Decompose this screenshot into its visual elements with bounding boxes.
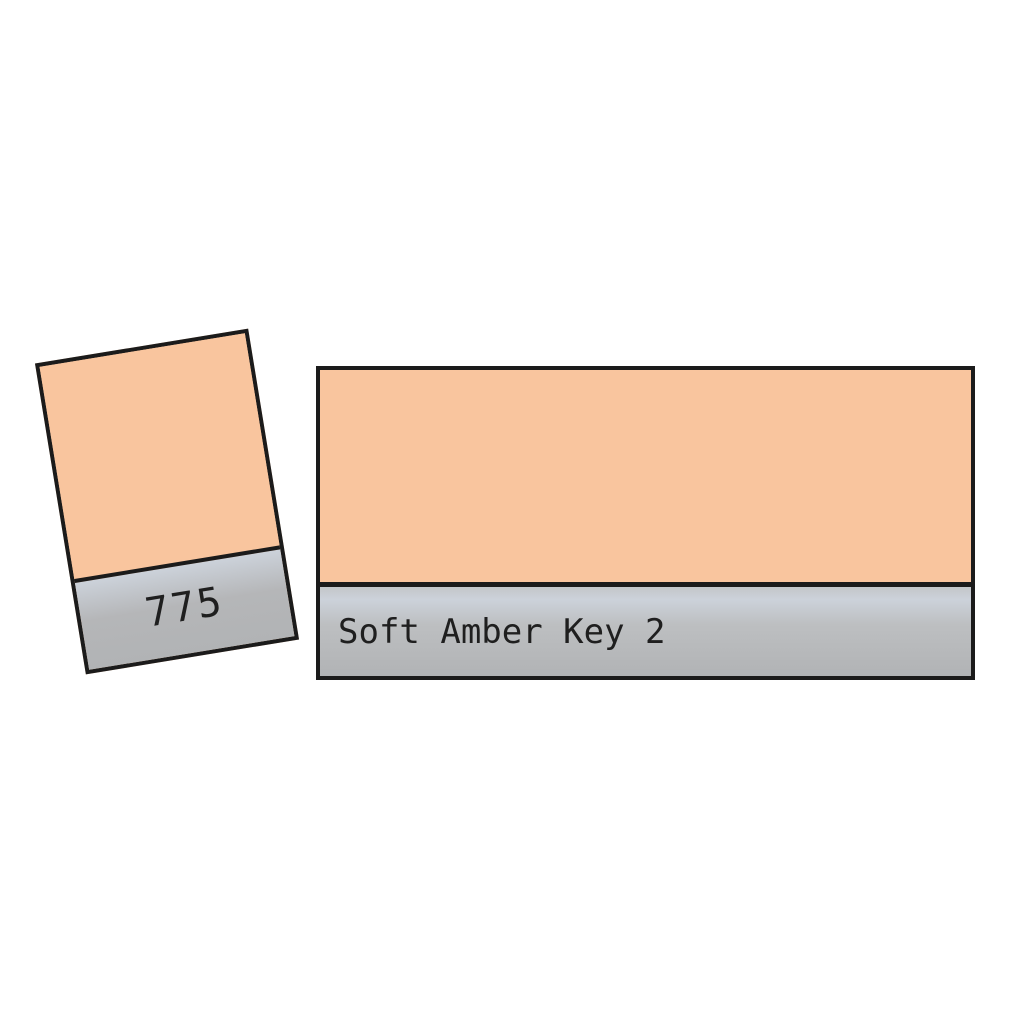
strip-color-area <box>320 370 971 582</box>
filter-name: Soft Amber Key 2 <box>320 612 666 652</box>
strip-name-band: Soft Amber Key 2 <box>320 582 971 676</box>
swatch-product-image: 775 Soft Amber Key 2 <box>0 0 1035 1035</box>
filter-code: 775 <box>142 579 227 637</box>
card-color-area <box>40 333 280 579</box>
swatch-strip: Soft Amber Key 2 <box>316 366 975 680</box>
swatch-card-angled: 775 <box>35 329 299 675</box>
